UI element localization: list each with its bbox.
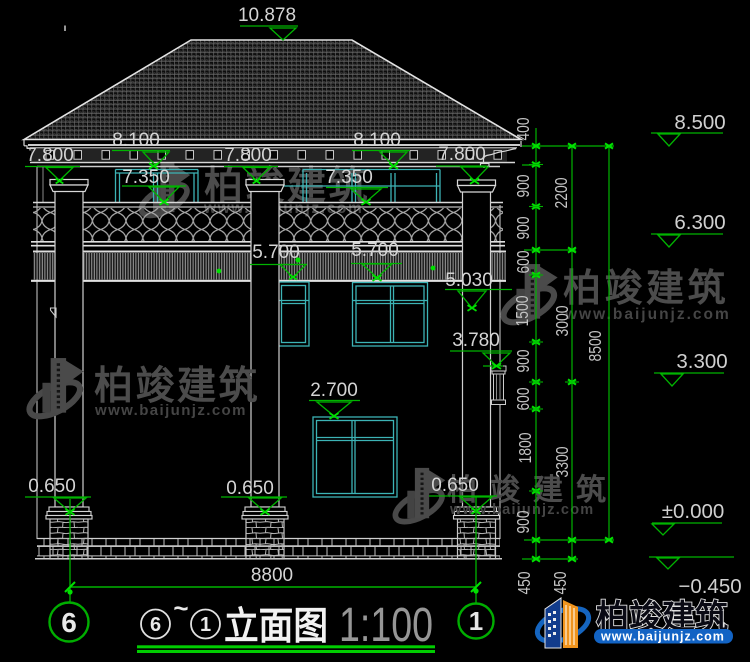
svg-text:3000: 3000 [552, 305, 572, 336]
svg-text:1: 1 [200, 614, 211, 636]
svg-text:10.878: 10.878 [238, 5, 296, 26]
svg-text:7.800: 7.800 [224, 145, 272, 166]
svg-text:1800: 1800 [515, 432, 535, 463]
svg-text:600: 600 [513, 250, 533, 273]
svg-text:1: 1 [469, 606, 483, 636]
svg-text:8500: 8500 [585, 330, 605, 361]
svg-text:www.baijunjz.com: www.baijunjz.com [564, 306, 731, 323]
svg-text:2.700: 2.700 [310, 380, 358, 401]
svg-text:0.650: 0.650 [226, 478, 274, 499]
svg-text:600: 600 [513, 387, 533, 410]
svg-text:8.500: 8.500 [674, 111, 725, 134]
svg-text:6: 6 [61, 607, 77, 638]
svg-text:3.300: 3.300 [676, 350, 727, 373]
svg-text:3300: 3300 [552, 446, 572, 477]
svg-text:2200: 2200 [551, 177, 571, 208]
svg-text:6.300: 6.300 [674, 211, 725, 234]
svg-text:7.350: 7.350 [325, 167, 373, 188]
svg-text:8800: 8800 [251, 565, 293, 586]
svg-text:900: 900 [513, 174, 533, 197]
svg-text:0.650: 0.650 [431, 475, 479, 496]
svg-text:7.800: 7.800 [438, 144, 486, 165]
svg-text:900: 900 [513, 510, 533, 533]
svg-text:3.780: 3.780 [452, 330, 500, 351]
svg-text:−0.450: −0.450 [678, 575, 741, 598]
svg-text:柏竣建筑: 柏竣建筑 [563, 268, 729, 310]
svg-text:www.baijunjz.com: www.baijunjz.com [94, 402, 247, 419]
svg-text:8.100: 8.100 [353, 130, 401, 151]
svg-text:0.650: 0.650 [28, 476, 76, 497]
svg-text:8.100: 8.100 [112, 130, 160, 151]
svg-text:7.800: 7.800 [26, 145, 74, 166]
svg-text:1:100: 1:100 [339, 599, 433, 652]
svg-text:±0.000: ±0.000 [662, 500, 725, 523]
svg-text:~: ~ [173, 593, 188, 623]
svg-text:5.700: 5.700 [351, 240, 399, 261]
svg-text:450: 450 [514, 571, 534, 594]
svg-text:450: 450 [550, 571, 570, 594]
svg-text:6: 6 [150, 614, 161, 636]
svg-text:立面图: 立面图 [224, 606, 328, 648]
svg-text:900: 900 [513, 349, 533, 372]
svg-text:www.baijunjz.com: www.baijunjz.com [600, 630, 725, 644]
svg-text:5.700: 5.700 [252, 242, 300, 263]
svg-text:400: 400 [513, 117, 533, 140]
svg-text:5.030: 5.030 [445, 270, 493, 291]
svg-text:1500: 1500 [512, 295, 532, 326]
svg-text:900: 900 [513, 216, 533, 239]
svg-text:7.350: 7.350 [122, 167, 170, 188]
